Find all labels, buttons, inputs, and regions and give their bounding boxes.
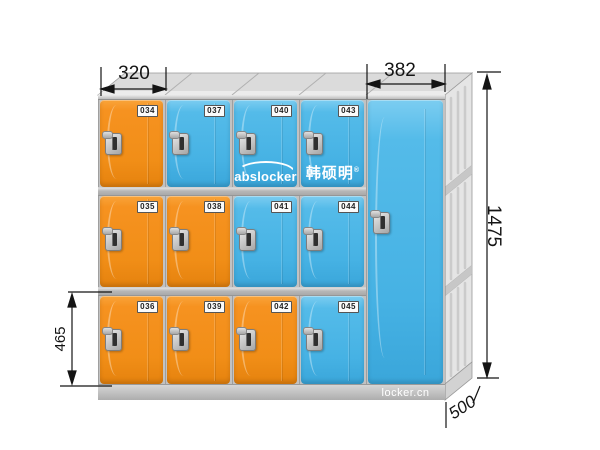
door-number-plate: 043: [338, 105, 359, 117]
row-divider: [232, 287, 299, 296]
lock-keyhole-icon: [313, 333, 318, 346]
column-plinth: [232, 384, 299, 400]
column-plinth-branded: locker.cn: [366, 384, 445, 400]
column-plinth: [299, 384, 366, 400]
door-number-plate: 037: [204, 105, 225, 117]
locker-door-043: 043 韩硕明®: [301, 100, 364, 187]
door-lock-icon: [172, 229, 189, 251]
lock-keyhole-icon: [112, 333, 117, 346]
locker-door-041: 041: [234, 196, 297, 287]
side-panel-ribs: [451, 87, 465, 376]
website-label: locker.cn: [366, 386, 445, 400]
product-dimension-diagram: 034 035 036 037 038 039: [0, 0, 600, 450]
lock-keyhole-icon: [313, 233, 318, 246]
locker-column-1: 034 035 036: [98, 95, 165, 400]
locker-door-036: 036: [100, 296, 163, 384]
door-lock-icon: [172, 133, 189, 155]
door-number-plate: 044: [338, 201, 359, 213]
locker-door-035: 035: [100, 196, 163, 287]
door-lock-icon: [172, 329, 189, 351]
brand-chinese-logo: 韩硕明®: [301, 162, 364, 182]
abslocker-logo-text: abslocker: [234, 168, 297, 185]
locker-column-5-wide: locker.cn: [366, 95, 445, 400]
row-divider: [232, 187, 299, 196]
door-lock-icon: [105, 329, 122, 351]
row-divider: [98, 287, 165, 296]
locker-door-044: 044: [301, 196, 364, 287]
locker-door-wide: [368, 100, 443, 384]
column-plinth: [98, 384, 165, 400]
row-divider: [299, 187, 366, 196]
row-divider: [98, 187, 165, 196]
locker-door-040: 040 abslocker: [234, 100, 297, 187]
dimension-width-320: 320: [104, 63, 164, 85]
lock-keyhole-icon: [313, 137, 318, 150]
door-lock-icon: [306, 229, 323, 251]
door-lock-icon: [239, 229, 256, 251]
door-number-plate: 039: [204, 301, 225, 313]
locker-door-034: 034: [100, 100, 163, 187]
lock-keyhole-icon: [179, 333, 184, 346]
lock-keyhole-icon: [246, 333, 251, 346]
lock-keyhole-icon: [246, 233, 251, 246]
door-number-plate: 041: [271, 201, 292, 213]
locker-door-042: 042: [234, 296, 297, 384]
column-plinth: [165, 384, 232, 400]
abslocker-logo: abslocker: [234, 161, 297, 185]
locker-column-2: 037 038 039: [165, 95, 232, 400]
door-lock-icon: [105, 133, 122, 155]
dimension-height-465: 465: [52, 309, 72, 369]
locker-door-038: 038: [167, 196, 230, 287]
lock-keyhole-icon: [112, 137, 117, 150]
dimension-width-382: 382: [370, 60, 430, 82]
door-lock-icon: [306, 133, 323, 155]
row-divider: [299, 287, 366, 296]
door-lock-icon: [105, 229, 122, 251]
lock-keyhole-icon: [179, 137, 184, 150]
lock-keyhole-icon: [179, 233, 184, 246]
lock-keyhole-icon: [112, 233, 117, 246]
row-divider: [165, 287, 232, 296]
locker-cabinet-front: 034 035 036 037 038 039: [98, 95, 445, 400]
door-number-plate: 038: [204, 201, 225, 213]
row-divider: [165, 187, 232, 196]
door-number-plate: 042: [271, 301, 292, 313]
door-number-plate: 040: [271, 105, 292, 117]
door-lock-icon: [373, 212, 390, 234]
locker-door-045: 045: [301, 296, 364, 384]
locker-column-4: 043 韩硕明® 044 045: [299, 95, 366, 400]
door-number-plate: 034: [137, 105, 158, 117]
door-number-plate: 036: [137, 301, 158, 313]
brand-chinese-logo-text: 韩硕明: [306, 165, 354, 182]
door-number-plate: 035: [137, 201, 158, 213]
door-lock-icon: [306, 329, 323, 351]
registered-trademark-symbol: ®: [354, 167, 359, 174]
door-lock-icon: [239, 133, 256, 155]
door-lock-icon: [239, 329, 256, 351]
locker-door-039: 039: [167, 296, 230, 384]
locker-column-3: 040 abslocker 041 042: [232, 95, 299, 400]
lock-keyhole-icon: [246, 137, 251, 150]
dimension-height-1475: 1475: [484, 196, 504, 256]
lock-keyhole-icon: [380, 216, 385, 229]
locker-door-037: 037: [167, 100, 230, 187]
door-number-plate: 045: [338, 301, 359, 313]
cabinet-side-panel: [445, 73, 472, 400]
